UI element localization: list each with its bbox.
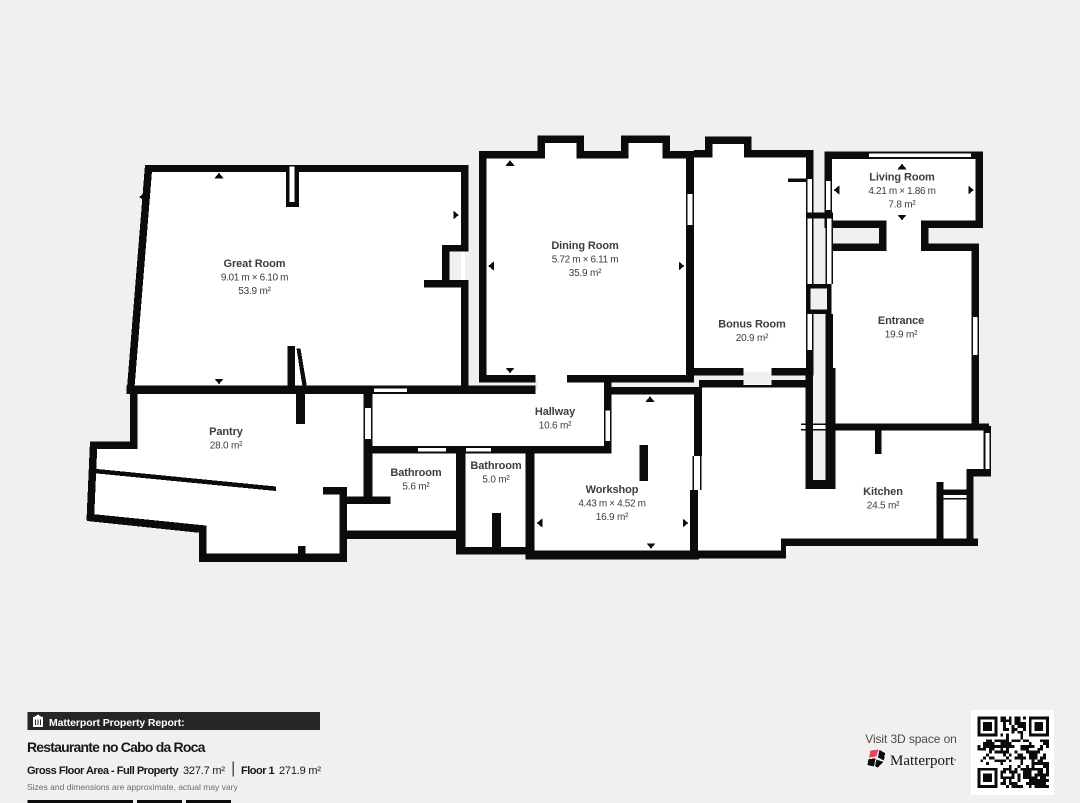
- svg-text:4.21 m × 1.86 m: 4.21 m × 1.86 m: [868, 186, 935, 197]
- svg-text:20.9 m²: 20.9 m²: [736, 333, 769, 344]
- svg-text:Floor 1: Floor 1: [241, 765, 275, 777]
- svg-text:4.43 m × 4.52 m: 4.43 m × 4.52 m: [578, 499, 645, 510]
- svg-text:5.6 m²: 5.6 m²: [402, 482, 430, 493]
- svg-text:Bathroom: Bathroom: [470, 460, 521, 472]
- svg-text:Gross Floor Area - Full Proper: Gross Floor Area - Full Property: [27, 765, 179, 777]
- svg-text:Visit 3D space on: Visit 3D space on: [865, 732, 956, 746]
- svg-text:19.9 m²: 19.9 m²: [885, 330, 918, 341]
- svg-text:7.8 m²: 7.8 m²: [888, 200, 916, 211]
- svg-text:327.7 m²: 327.7 m²: [183, 765, 225, 777]
- svg-text:Living Room: Living Room: [869, 172, 935, 184]
- svg-text:Entrance: Entrance: [878, 315, 924, 327]
- svg-text:10.6 m²: 10.6 m²: [539, 421, 572, 432]
- svg-text:24.5 m²: 24.5 m²: [867, 501, 900, 512]
- svg-text:16.9 m²: 16.9 m²: [596, 512, 629, 523]
- svg-text:Restaurante no Cabo da Roca: Restaurante no Cabo da Roca: [27, 739, 206, 755]
- svg-text:53.9 m²: 53.9 m²: [238, 286, 271, 297]
- svg-text:Matterport Property Report:: Matterport Property Report:: [49, 717, 185, 729]
- svg-text:Pantry: Pantry: [209, 426, 244, 438]
- svg-text:271.9 m²: 271.9 m²: [279, 765, 321, 777]
- svg-text:35.9 m²: 35.9 m²: [569, 268, 602, 279]
- svg-text:Great Room: Great Room: [224, 258, 286, 270]
- svg-text:Matterport,: Matterport,: [890, 753, 956, 769]
- svg-text:Hallway: Hallway: [535, 406, 576, 418]
- svg-text:Sizes and dimensions are appro: Sizes and dimensions are approximate, ac…: [27, 782, 238, 792]
- svg-text:Workshop: Workshop: [586, 484, 639, 496]
- svg-text:Kitchen: Kitchen: [863, 486, 903, 498]
- svg-text:Dining Room: Dining Room: [551, 240, 619, 252]
- svg-text:28.0 m²: 28.0 m²: [210, 441, 243, 452]
- svg-text:Bonus Room: Bonus Room: [718, 319, 786, 331]
- svg-text:Bathroom: Bathroom: [390, 467, 441, 479]
- svg-text:5.72 m × 6.11 m: 5.72 m × 6.11 m: [552, 255, 619, 266]
- svg-text:9.01 m × 6.10 m: 9.01 m × 6.10 m: [221, 273, 288, 284]
- svg-text:5.0 m²: 5.0 m²: [482, 475, 510, 486]
